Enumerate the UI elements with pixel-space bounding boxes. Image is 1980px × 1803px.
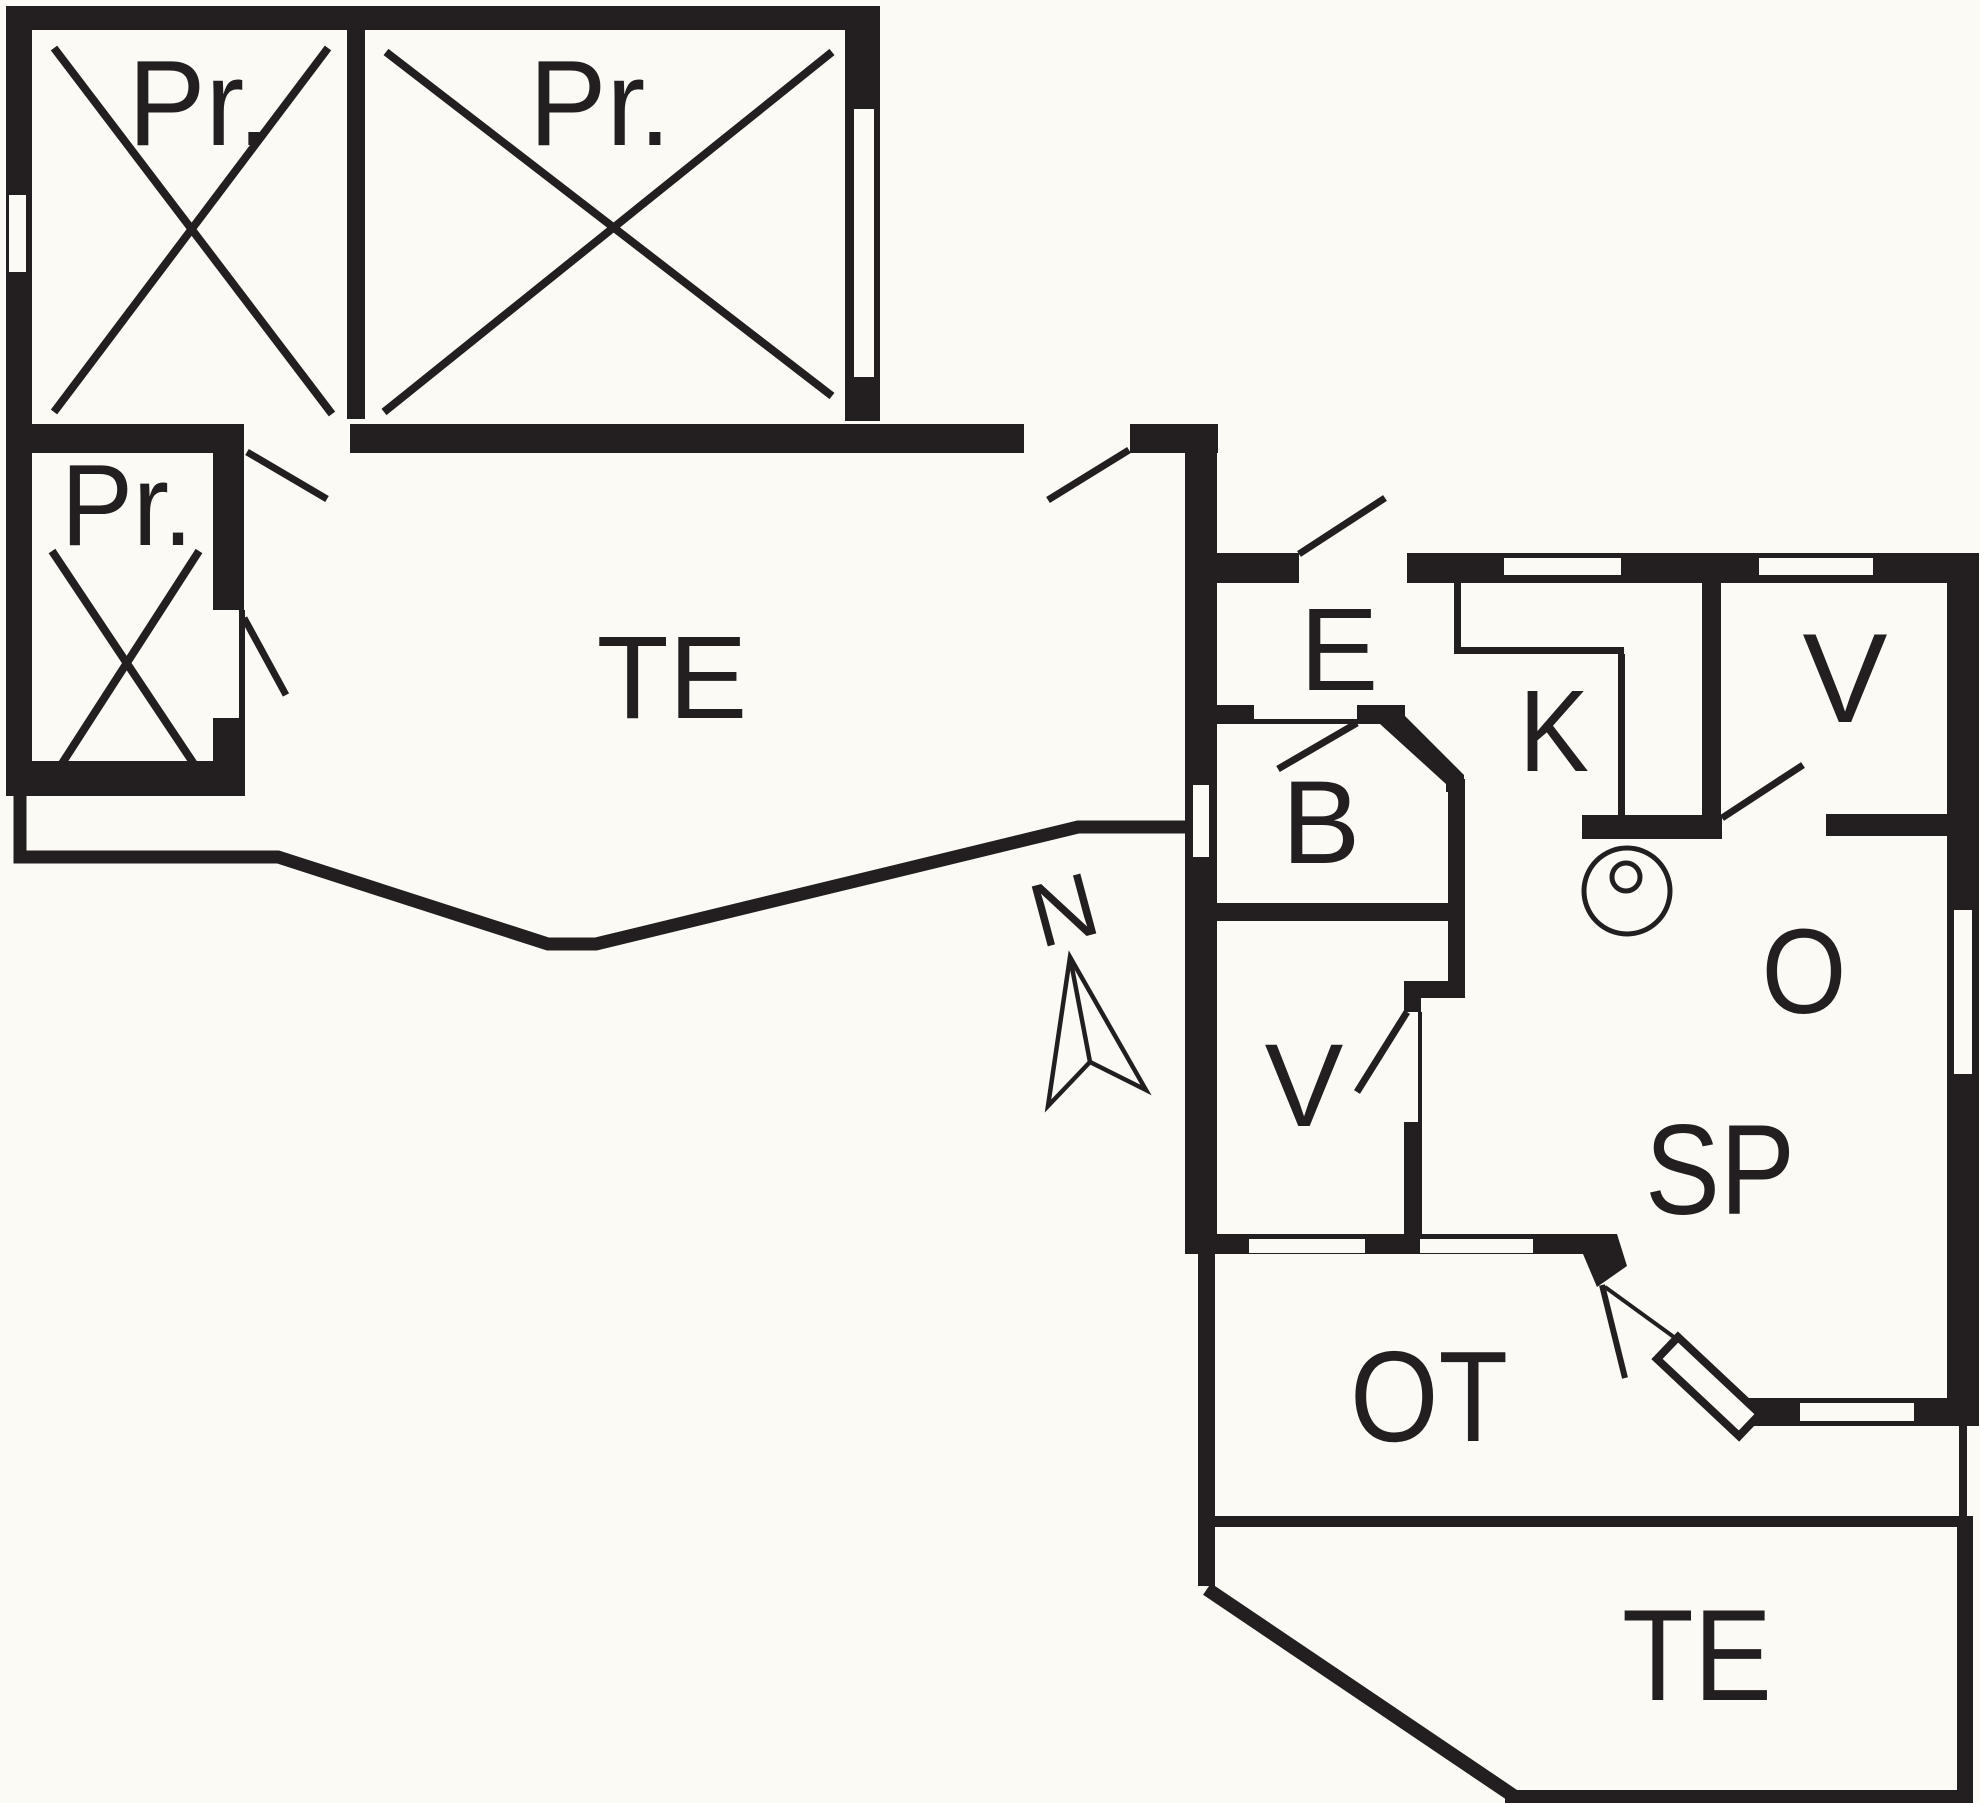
svg-text:V: V — [1265, 1020, 1344, 1152]
svg-text:Pr.: Pr. — [128, 35, 270, 171]
svg-text:V: V — [1803, 607, 1888, 749]
svg-text:B: B — [1282, 757, 1361, 889]
svg-text:OT: OT — [1350, 1325, 1508, 1469]
svg-text:Pr.: Pr. — [529, 35, 671, 171]
svg-text:SP: SP — [1645, 1099, 1795, 1242]
svg-text:E: E — [1300, 584, 1379, 716]
svg-text:Pr.: Pr. — [61, 440, 193, 570]
svg-text:TE: TE — [1622, 1582, 1772, 1728]
svg-text:K: K — [1519, 666, 1589, 796]
svg-text:O: O — [1762, 903, 1847, 1039]
svg-text:TE: TE — [597, 612, 748, 744]
